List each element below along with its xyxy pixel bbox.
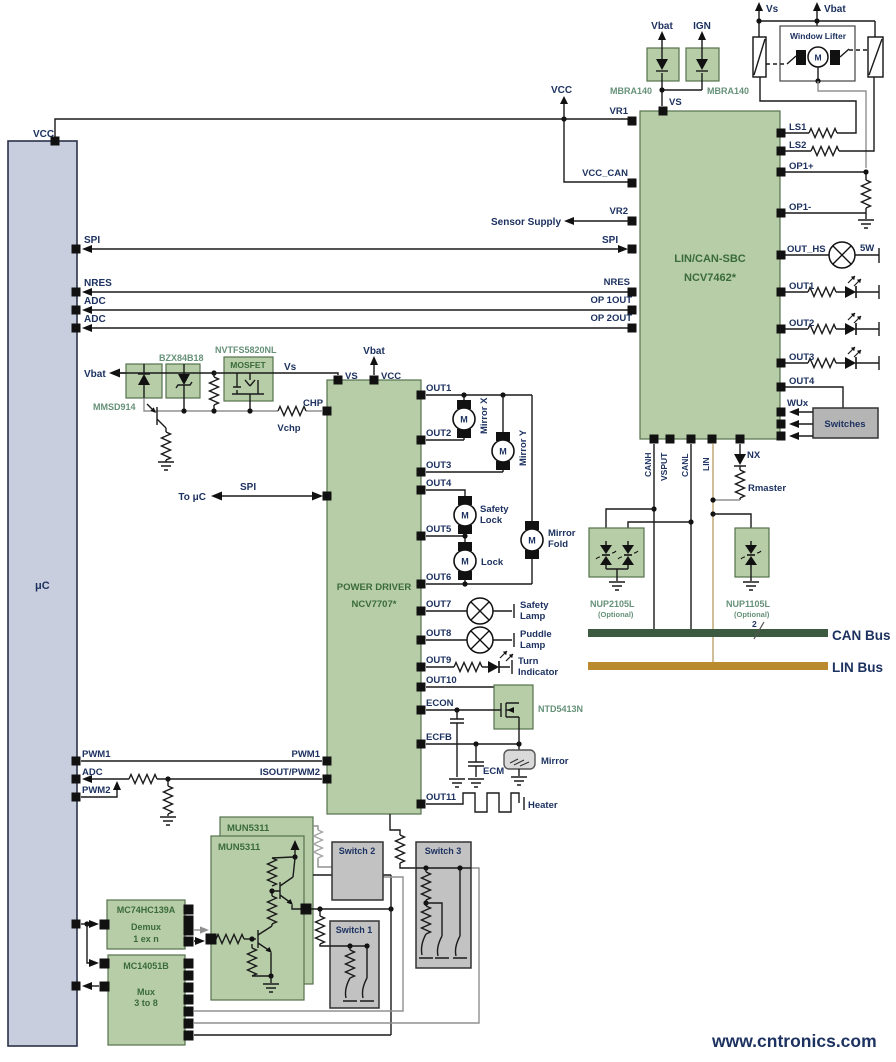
- svg-text:LS2: LS2: [789, 140, 806, 151]
- svg-text:PWM1: PWM1: [82, 749, 111, 760]
- svg-text:OUT8: OUT8: [426, 628, 451, 639]
- svg-text:NRES: NRES: [604, 277, 630, 288]
- svg-text:Vbat: Vbat: [363, 346, 385, 357]
- svg-text:OUT6: OUT6: [426, 572, 451, 583]
- svg-text:Demux: Demux: [131, 922, 161, 932]
- svg-text:Window Lifter: Window Lifter: [790, 31, 847, 41]
- svg-text:Heater: Heater: [528, 800, 558, 811]
- svg-text:Lamp: Lamp: [520, 640, 546, 651]
- svg-text:NTD5413N: NTD5413N: [538, 704, 583, 714]
- svg-text:OUT_HS: OUT_HS: [787, 244, 826, 255]
- svg-text:OP 1OUT: OP 1OUT: [590, 295, 632, 306]
- svg-text:ECFB: ECFB: [426, 732, 452, 743]
- svg-text:Safety: Safety: [520, 600, 549, 611]
- svg-text:NCV7707*: NCV7707*: [352, 599, 397, 610]
- svg-text:OUT11: OUT11: [426, 792, 457, 803]
- svg-text:Fold: Fold: [548, 539, 568, 550]
- svg-text:OP1-: OP1-: [789, 202, 811, 213]
- svg-text:Rmaster: Rmaster: [748, 483, 786, 494]
- svg-text:OUT2: OUT2: [426, 428, 451, 439]
- svg-text:CANH: CANH: [643, 452, 653, 477]
- svg-text:Lamp: Lamp: [520, 611, 546, 622]
- svg-text:NUP1105L: NUP1105L: [726, 599, 771, 609]
- svg-text:Lock: Lock: [480, 515, 503, 526]
- svg-text:MC74HC139A: MC74HC139A: [117, 905, 176, 915]
- svg-text:NVTFS5820NL: NVTFS5820NL: [215, 345, 277, 355]
- svg-text:VCC: VCC: [551, 85, 572, 96]
- svg-text:2: 2: [752, 619, 757, 629]
- svg-text:OUT1: OUT1: [426, 383, 452, 394]
- svg-text:Switch 3: Switch 3: [425, 846, 462, 856]
- svg-text:Mirror: Mirror: [541, 756, 569, 767]
- svg-text:OUT7: OUT7: [426, 599, 451, 610]
- svg-text:Vs: Vs: [766, 4, 779, 15]
- svg-text:ADC: ADC: [84, 296, 106, 307]
- svg-text:VS: VS: [345, 371, 358, 382]
- svg-text:Safety: Safety: [480, 504, 509, 515]
- svg-text:MUN5311: MUN5311: [227, 823, 270, 834]
- svg-text:ISOUT/PWM2: ISOUT/PWM2: [260, 767, 320, 778]
- svg-text:PWM1: PWM1: [292, 749, 321, 760]
- svg-text:μC: μC: [35, 580, 50, 592]
- svg-text:NUP2105L: NUP2105L: [590, 599, 635, 609]
- svg-text:Mirror: Mirror: [548, 528, 576, 539]
- svg-text:Puddle: Puddle: [520, 629, 552, 640]
- svg-text:Vbat: Vbat: [651, 21, 673, 32]
- svg-text:CANL: CANL: [680, 453, 690, 477]
- svg-text:5W: 5W: [860, 243, 874, 254]
- svg-text:VR1: VR1: [610, 106, 629, 117]
- svg-text:Switches: Switches: [824, 419, 865, 430]
- svg-text:VR2: VR2: [610, 206, 628, 217]
- svg-text:OP1+: OP1+: [789, 161, 814, 172]
- svg-text:(Optional): (Optional): [598, 610, 634, 619]
- svg-text:NCV7462*: NCV7462*: [684, 272, 737, 284]
- svg-text:NRES: NRES: [84, 278, 112, 289]
- svg-text:ECM: ECM: [483, 766, 504, 777]
- svg-text:Vbat: Vbat: [84, 369, 106, 380]
- svg-text:MBRA140: MBRA140: [707, 86, 749, 96]
- svg-text:OUT5: OUT5: [426, 524, 452, 535]
- svg-text:OUT4: OUT4: [426, 478, 452, 489]
- svg-text:OP 2OUT: OP 2OUT: [590, 313, 632, 324]
- svg-text:OUT2: OUT2: [789, 318, 814, 329]
- svg-text:NX: NX: [747, 450, 761, 461]
- svg-text:Vbat: Vbat: [824, 4, 846, 15]
- svg-text:Mux: Mux: [137, 987, 155, 997]
- svg-text:ECON: ECON: [426, 698, 454, 709]
- svg-text:BZX84B18: BZX84B18: [159, 353, 204, 363]
- svg-text:IGN: IGN: [693, 21, 711, 32]
- svg-text:MBRA140: MBRA140: [610, 86, 652, 96]
- svg-text:LIN: LIN: [701, 457, 711, 471]
- svg-text:Sensor Supply: Sensor Supply: [491, 217, 561, 228]
- svg-text:POWER DRIVER: POWER DRIVER: [337, 582, 412, 593]
- svg-text:ADC: ADC: [82, 767, 103, 778]
- svg-text:LIN/CAN-SBC: LIN/CAN-SBC: [674, 253, 746, 265]
- svg-text:To μC: To μC: [178, 492, 206, 503]
- svg-text:OUT9: OUT9: [426, 655, 451, 666]
- svg-text:Lock: Lock: [481, 557, 504, 568]
- svg-text:LS1: LS1: [789, 122, 807, 133]
- svg-text:Vchp: Vchp: [277, 423, 300, 434]
- svg-text:Indicator: Indicator: [518, 667, 558, 678]
- svg-text:MOSFET: MOSFET: [230, 360, 266, 370]
- svg-text:Switch 1: Switch 1: [336, 925, 373, 935]
- svg-text:1 ex n: 1 ex n: [133, 934, 159, 944]
- svg-text:MC14051B: MC14051B: [123, 961, 169, 971]
- svg-text:MMSD914: MMSD914: [93, 402, 136, 412]
- svg-text:Turn: Turn: [518, 656, 539, 667]
- svg-text:MUN5311: MUN5311: [218, 842, 261, 853]
- svg-text:VCC: VCC: [381, 371, 401, 382]
- svg-text:www.cntronics.com: www.cntronics.com: [711, 1031, 877, 1051]
- svg-text:ADC: ADC: [84, 314, 106, 325]
- svg-text:OUT10: OUT10: [426, 675, 457, 686]
- svg-text:OUT3: OUT3: [789, 352, 814, 363]
- svg-text:Vs: Vs: [284, 362, 297, 373]
- svg-text:Mirror X: Mirror X: [479, 397, 490, 434]
- svg-text:SPI: SPI: [84, 235, 100, 246]
- svg-text:VCC_CAN: VCC_CAN: [582, 168, 628, 179]
- svg-text:VS: VS: [669, 97, 682, 108]
- svg-text:PWM2: PWM2: [82, 785, 111, 796]
- svg-text:(Optional): (Optional): [734, 610, 770, 619]
- svg-text:LIN Bus: LIN Bus: [832, 660, 883, 675]
- svg-text:SPI: SPI: [240, 482, 256, 493]
- svg-text:OUT1: OUT1: [789, 281, 815, 292]
- svg-text:CAN Bus: CAN Bus: [832, 628, 891, 643]
- svg-text:VSPUT: VSPUT: [659, 452, 669, 481]
- svg-text:Switch 2: Switch 2: [339, 846, 376, 856]
- svg-text:WUx: WUx: [787, 398, 809, 409]
- svg-text:CHP: CHP: [303, 398, 324, 409]
- svg-text:SPI: SPI: [602, 235, 618, 246]
- svg-text:3 to 8: 3 to 8: [134, 998, 158, 1008]
- svg-text:OUT4: OUT4: [789, 376, 815, 387]
- svg-text:Mirror Y: Mirror Y: [518, 429, 529, 466]
- svg-text:OUT3: OUT3: [426, 460, 451, 471]
- svg-text:M: M: [814, 53, 821, 63]
